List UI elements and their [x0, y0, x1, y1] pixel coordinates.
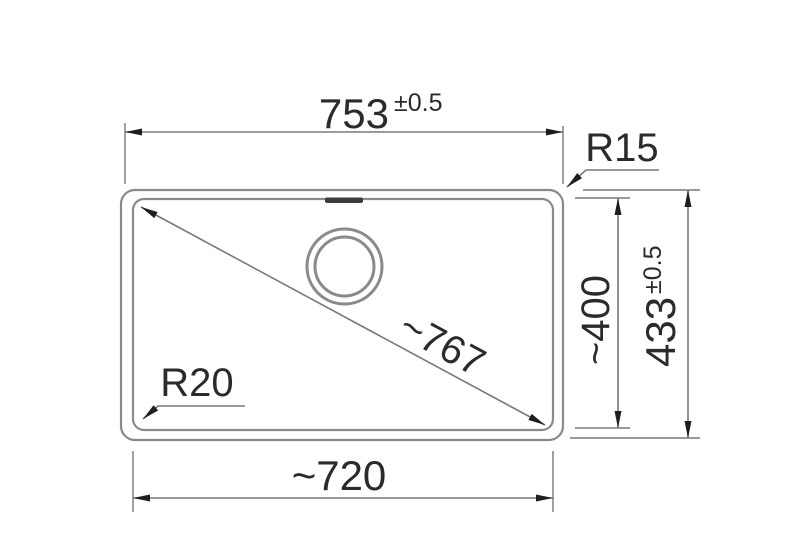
drain-inner-circle — [315, 237, 374, 296]
overall-width-label: 753 — [319, 90, 389, 137]
inner-corner-radius-label: R20 — [160, 361, 233, 405]
overall-width-tolerance: ±0.5 — [394, 89, 442, 117]
drawing-canvas: ~767 753 ±0.5 R15 R20 ~400 433 ±0.5 ~720 — [0, 0, 800, 544]
bowl-height-label: ~400 — [574, 275, 618, 365]
dimension-drawing: ~767 753 ±0.5 R15 R20 ~400 433 ±0.5 ~720 — [0, 0, 800, 544]
overall-height-label: 433 — [637, 297, 684, 367]
overall-height-tolerance: ±0.5 — [639, 246, 667, 294]
outer-corner-radius-label: R15 — [585, 126, 658, 170]
bowl-width-label: ~720 — [292, 452, 387, 499]
overflow-slot — [325, 198, 363, 204]
diagonal-dimension-label: ~767 — [392, 304, 492, 385]
inner-corner-radius-leader — [143, 406, 245, 419]
outer-corner-radius-leader — [567, 170, 659, 187]
drain-outer-circle — [307, 229, 382, 304]
